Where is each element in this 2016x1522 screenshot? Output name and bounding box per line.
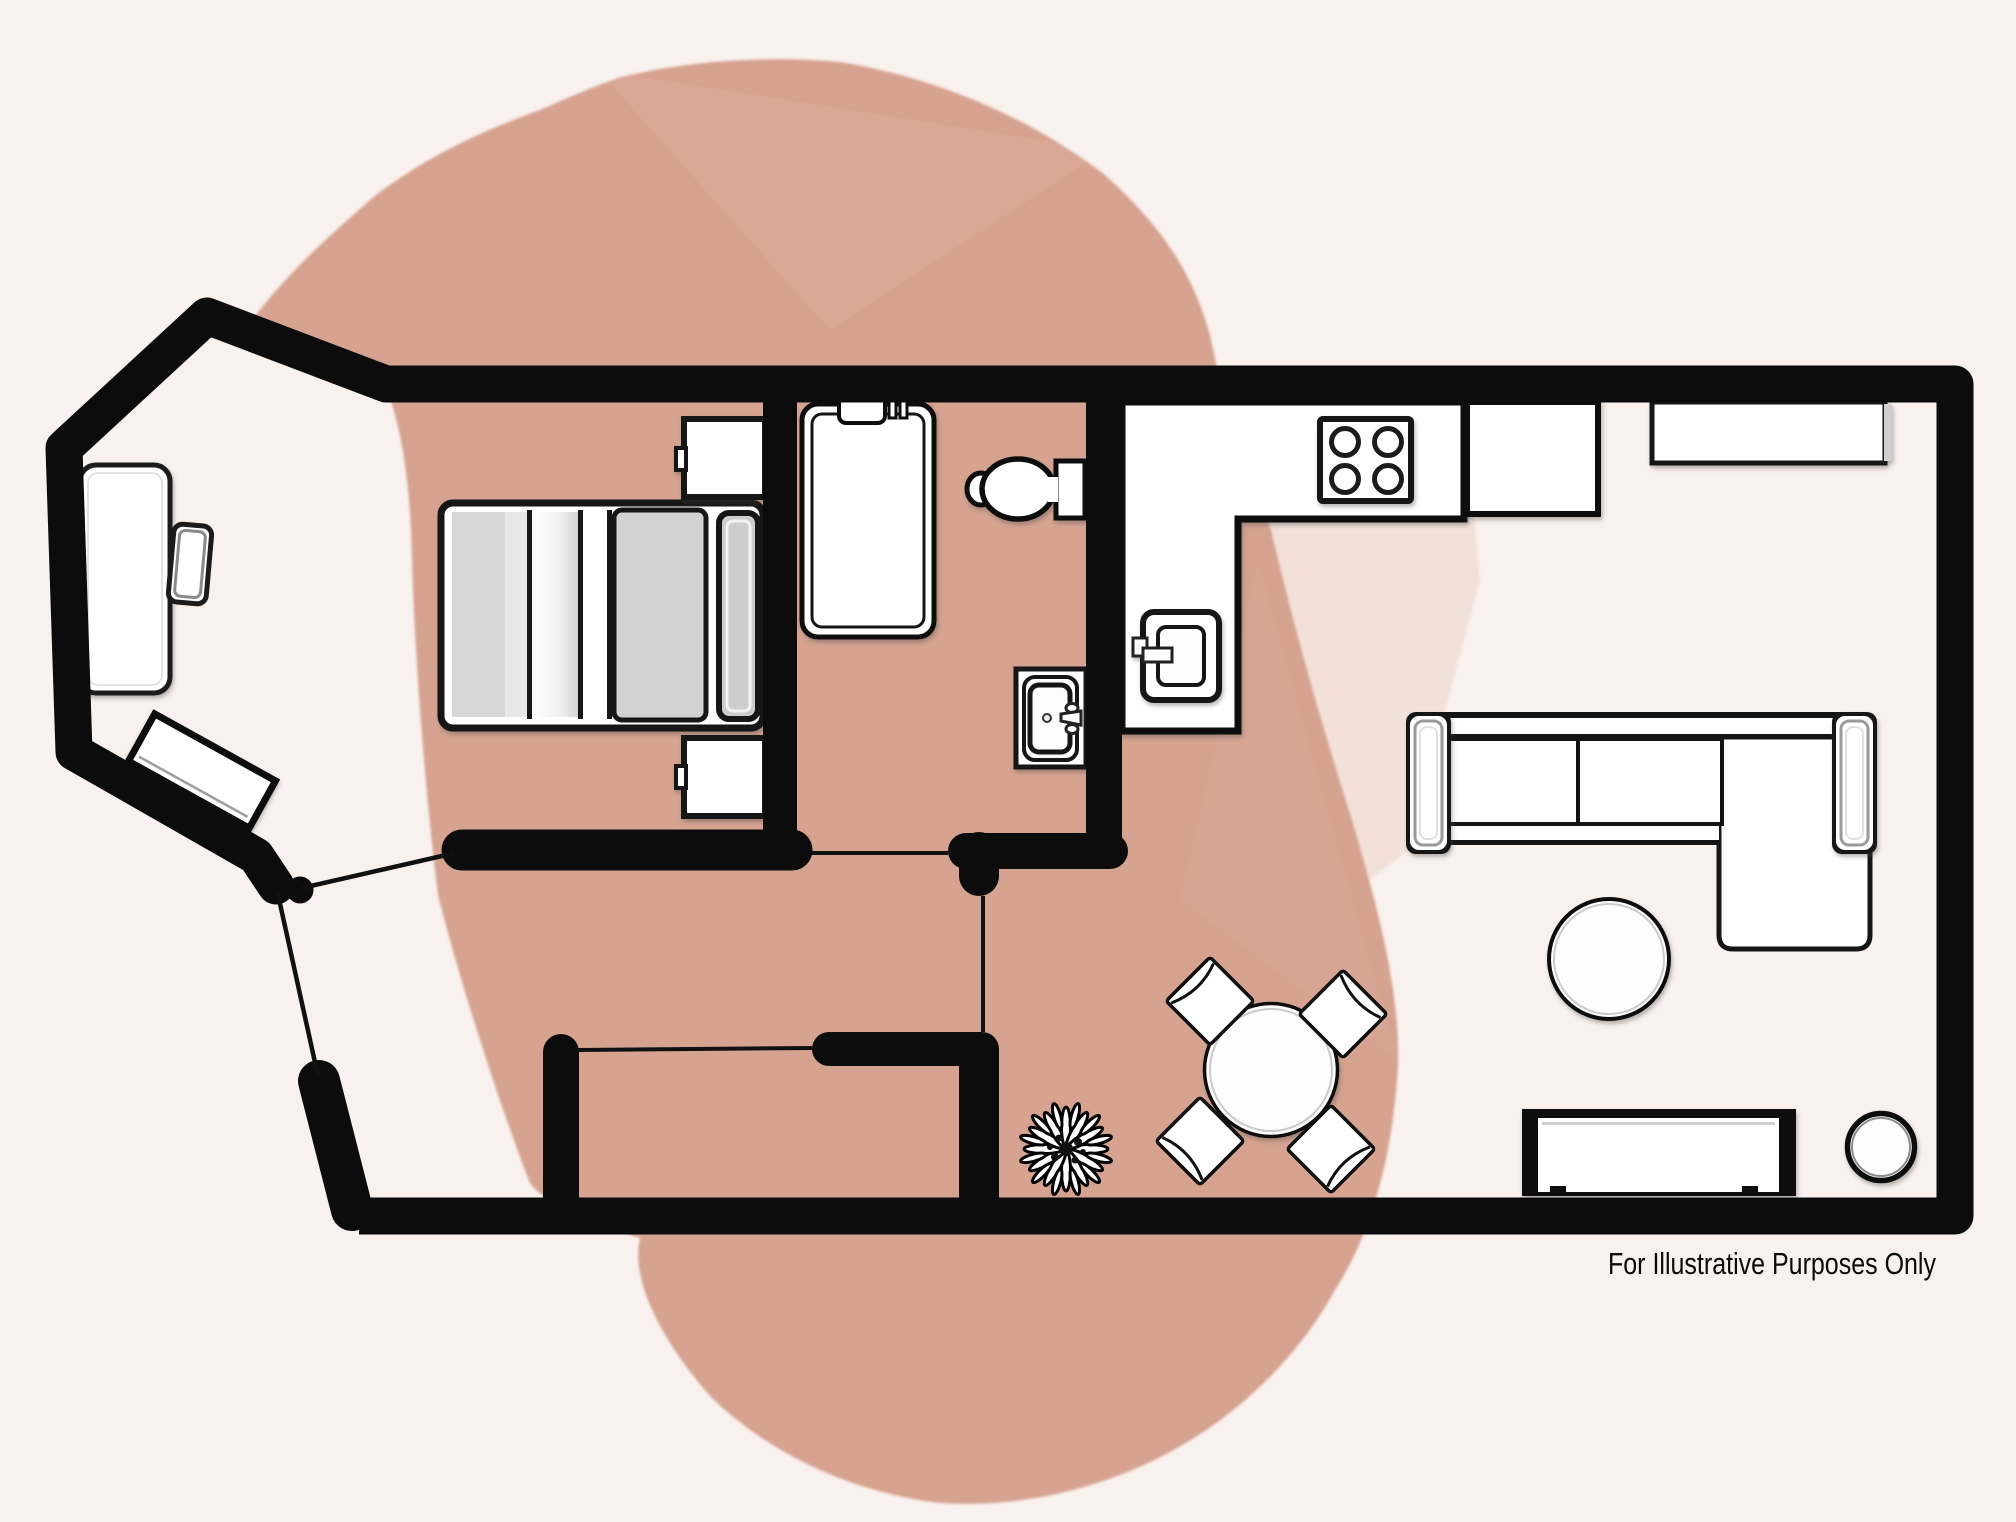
svg-text:For Illustrative Purposes Only: For Illustrative Purposes Only	[1608, 1246, 1936, 1281]
